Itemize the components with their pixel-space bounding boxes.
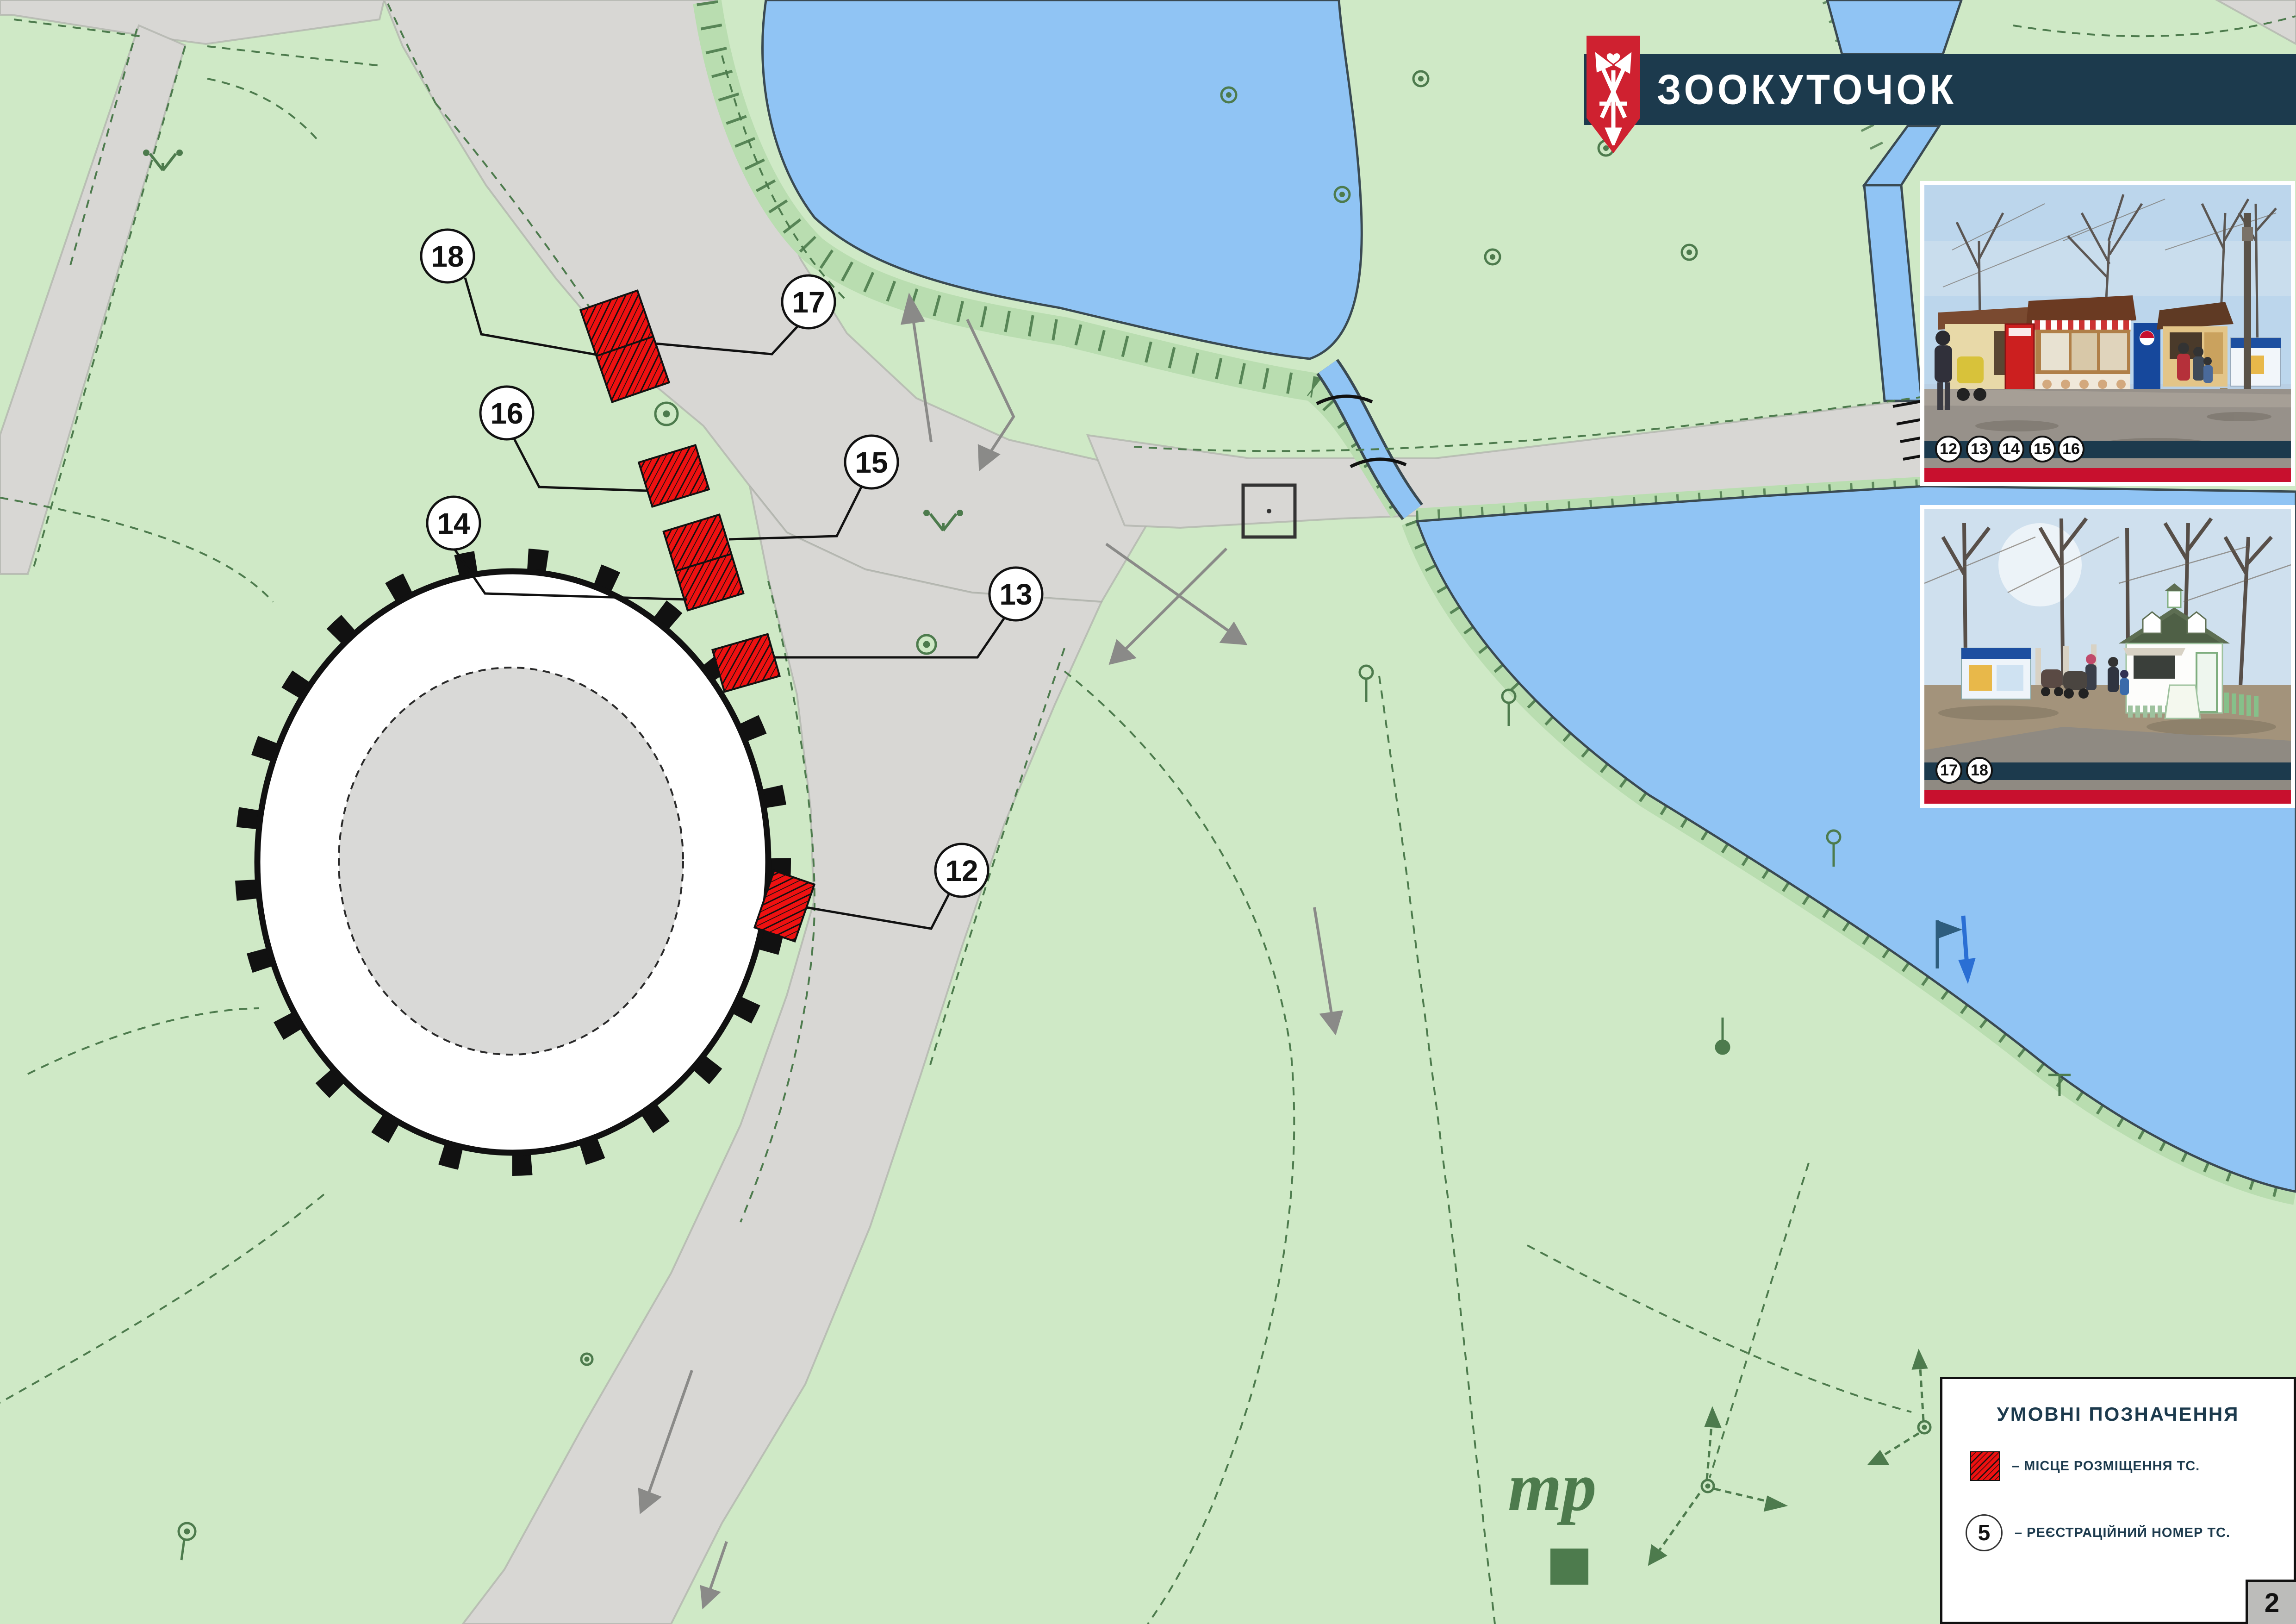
legend-label-placement: – МІСЦЕ РОЗМІЩЕННЯ ТС. [2012,1459,2200,1474]
legend-label-number: – РЕЄСТРАЦІЙНИЙ НОМЕР ТС. [2015,1525,2230,1541]
map-marker-15: 15 [845,436,898,488]
photo1-badge-16: 16 [2058,436,2084,462]
map-marker-13: 13 [989,568,1042,620]
svg-text:14: 14 [437,507,470,540]
map-marker-18: 18 [421,230,474,282]
title-banner: ЗООКУТОЧОК [1584,54,2296,125]
crossed-arrows-icon [1590,44,1636,145]
photo1-badge-12: 12 [1935,436,1962,462]
map-marker-14: 14 [427,497,480,550]
hatched-square-icon [1970,1451,2000,1481]
photo1-badge-14: 14 [1997,436,2024,462]
photo2-badge-18: 18 [1966,757,1993,784]
legend-box: УМОВНІ ПОЗНАЧЕННЯ – МІСЦЕ РОЗМІЩЕННЯ ТС.… [1940,1377,2296,1624]
legend-item-placement: – МІСЦЕ РОЗМІЩЕННЯ ТС. [1970,1451,2200,1481]
page-title: ЗООКУТОЧОК [1657,65,1957,114]
svg-text:17: 17 [792,286,825,319]
page: тр [0,0,2296,1624]
legend-item-number: 5 – РЕЄСТРАЦІЙНИЙ НОМЕР ТС. [1966,1514,2230,1551]
legend-number-circle: 5 [1966,1514,2003,1551]
channel-top [1827,0,1961,54]
photo-kiosk-spots-12-16: 12 13 14 15 16 [1924,185,2291,482]
svg-text:13: 13 [999,578,1032,611]
svg-text:16: 16 [490,397,523,430]
photo1-badge-15: 15 [2029,436,2056,462]
map-marker-16: 16 [480,387,533,439]
photo2-red-band [1924,790,2291,804]
page-number: 2 [2246,1580,2296,1624]
photo-kiosk-spots-17-18: 17 18 [1924,509,2291,804]
photo1-red-band [1924,468,2291,482]
map-marker-17: 17 [782,275,835,328]
building-square [1550,1549,1588,1585]
tr-label: тр [1508,1449,1597,1525]
map-marker-12: 12 [935,844,988,897]
svg-text:15: 15 [855,446,888,479]
legend-title: УМОВНІ ПОЗНАЧЕННЯ [1942,1403,2294,1425]
svg-text:18: 18 [431,240,464,273]
photo2-badge-17: 17 [1935,757,1962,784]
photo1-badge-13: 13 [1966,436,1993,462]
svg-text:12: 12 [945,854,978,887]
